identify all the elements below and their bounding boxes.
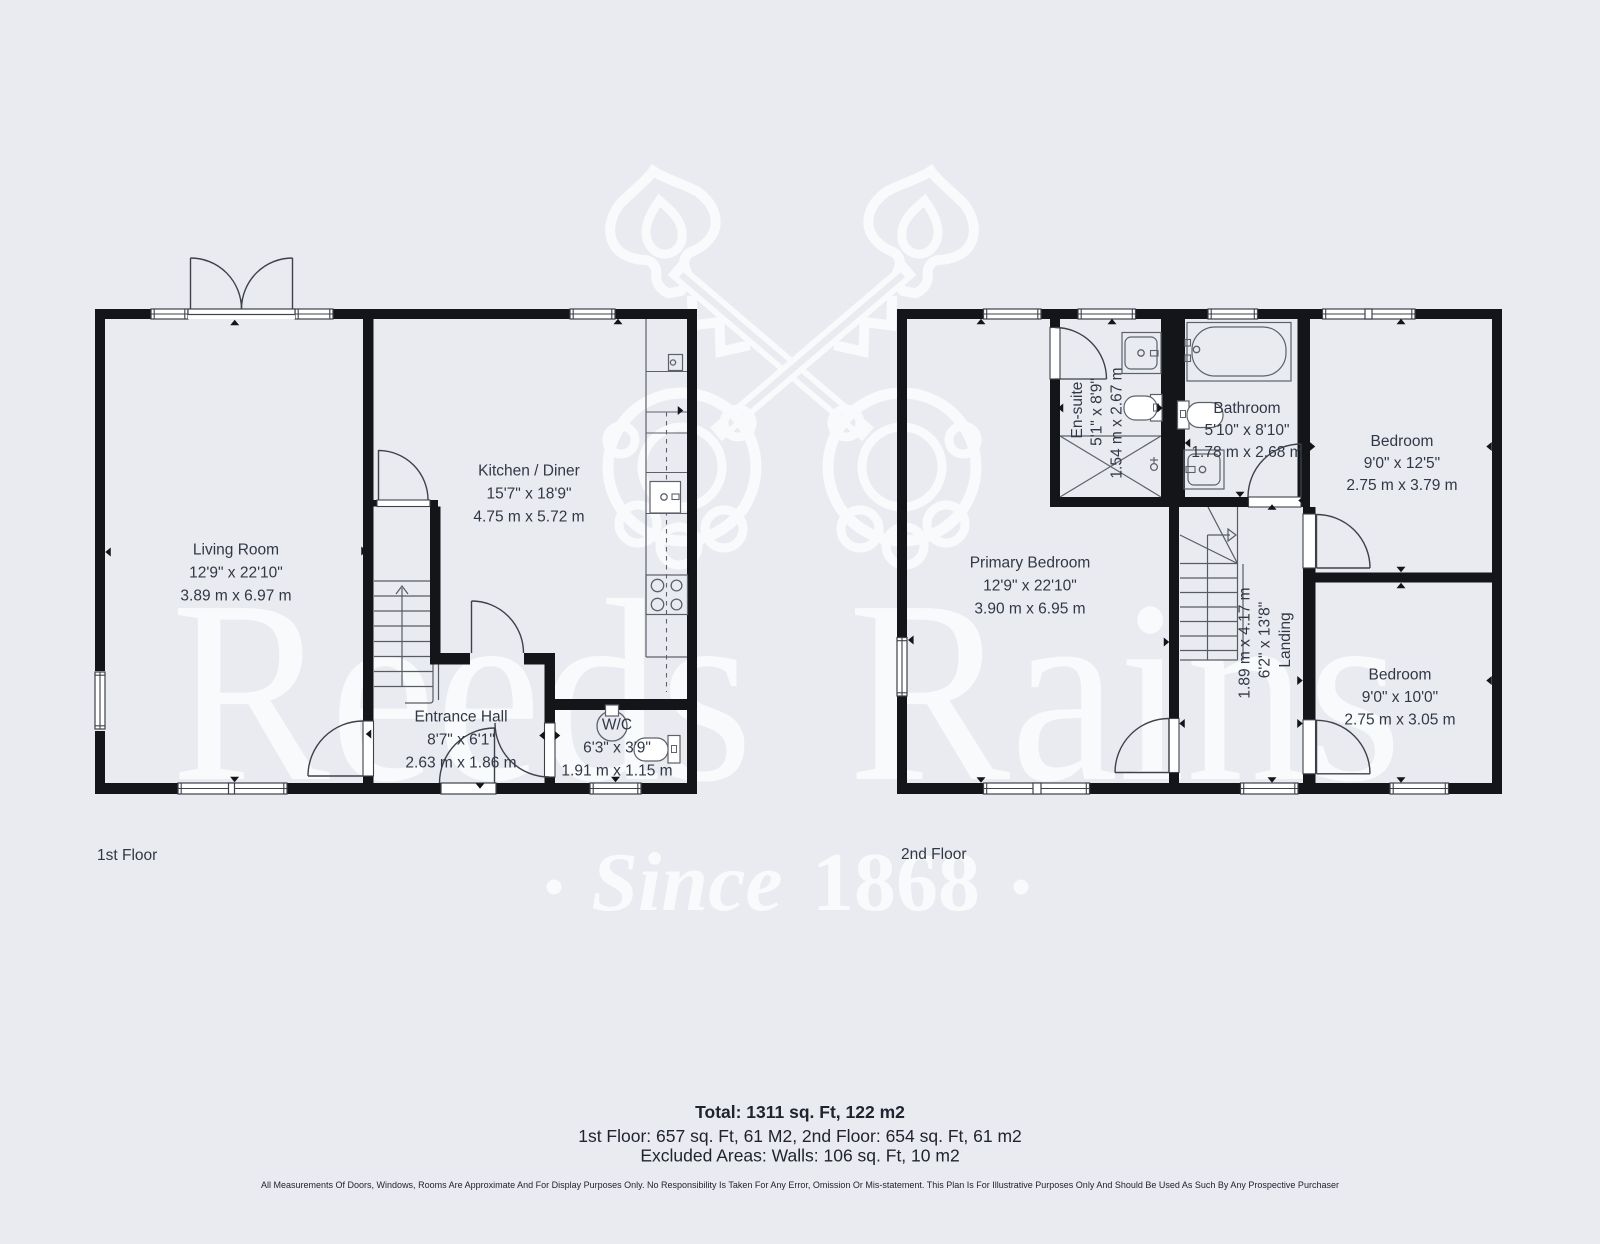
svg-text:1.54 m x 2.67 m: 1.54 m x 2.67 m <box>1109 367 1126 478</box>
svg-text:12'9" x 22'10": 12'9" x 22'10" <box>983 578 1077 595</box>
svg-text:9'0" x 12'5": 9'0" x 12'5" <box>1364 455 1440 472</box>
svg-text:4.75 m x 5.72 m: 4.75 m x 5.72 m <box>473 509 584 526</box>
svg-text:Entrance Hall: Entrance Hall <box>414 709 507 726</box>
svg-text:3.90 m x 6.95 m: 3.90 m x 6.95 m <box>974 601 1085 618</box>
svg-text:12'9" x 22'10": 12'9" x 22'10" <box>189 565 283 582</box>
svg-text:Excluded Areas: Walls: 106 sq.: Excluded Areas: Walls: 106 sq. Ft, 10 m2 <box>640 1146 959 1166</box>
svg-text:2nd Floor: 2nd Floor <box>901 846 966 863</box>
svg-text:Kitchen / Diner: Kitchen / Diner <box>478 463 580 480</box>
svg-text:1.91 m x 1.15 m: 1.91 m x 1.15 m <box>561 763 672 780</box>
svg-text:2.75 m x 3.79 m: 2.75 m x 3.79 m <box>1346 477 1457 494</box>
svg-text:Bathroom: Bathroom <box>1213 400 1280 417</box>
svg-text:2.63 m x 1.86 m: 2.63 m x 1.86 m <box>405 755 516 772</box>
svg-text:Since: Since <box>591 836 782 929</box>
svg-text:All Measurements Of Doors, Win: All Measurements Of Doors, Windows, Room… <box>261 1180 1339 1190</box>
svg-text:8'7" x 6'1": 8'7" x 6'1" <box>427 732 495 749</box>
svg-text:6'2" x 13'8": 6'2" x 13'8" <box>1257 602 1274 678</box>
svg-text:Bedroom: Bedroom <box>1371 433 1434 450</box>
svg-text:Living Room: Living Room <box>193 542 279 559</box>
svg-text:En-suite: En-suite <box>1069 382 1086 439</box>
svg-text:9'0" x 10'0": 9'0" x 10'0" <box>1362 689 1438 706</box>
svg-text:1st Floor: 657 sq. Ft, 61 M2,: 1st Floor: 657 sq. Ft, 61 M2, 2nd Floor:… <box>578 1126 1022 1146</box>
svg-text:Primary Bedroom: Primary Bedroom <box>970 555 1091 572</box>
svg-text:15'7" x 18'9": 15'7" x 18'9" <box>486 486 571 503</box>
svg-text:1st Floor: 1st Floor <box>97 847 157 864</box>
svg-text:Total: 1311 sq. Ft, 122 m2: Total: 1311 sq. Ft, 122 m2 <box>695 1102 905 1122</box>
svg-text:2.75 m x 3.05 m: 2.75 m x 3.05 m <box>1344 712 1455 729</box>
svg-text:5'1" x 8'9": 5'1" x 8'9" <box>1089 378 1106 446</box>
svg-text:Landing: Landing <box>1277 612 1294 667</box>
svg-text:3.89 m x 6.97 m: 3.89 m x 6.97 m <box>180 588 291 605</box>
svg-text:5'10" x 8'10": 5'10" x 8'10" <box>1204 422 1289 439</box>
svg-text:Bedroom: Bedroom <box>1369 667 1432 684</box>
svg-text:6'3" x 3'9": 6'3" x 3'9" <box>583 740 651 757</box>
svg-text:1.78 m x 2.68 m: 1.78 m x 2.68 m <box>1191 444 1302 461</box>
svg-text:1.89 m x 4.17 m: 1.89 m x 4.17 m <box>1237 587 1254 698</box>
svg-text:W/C: W/C <box>602 717 632 734</box>
